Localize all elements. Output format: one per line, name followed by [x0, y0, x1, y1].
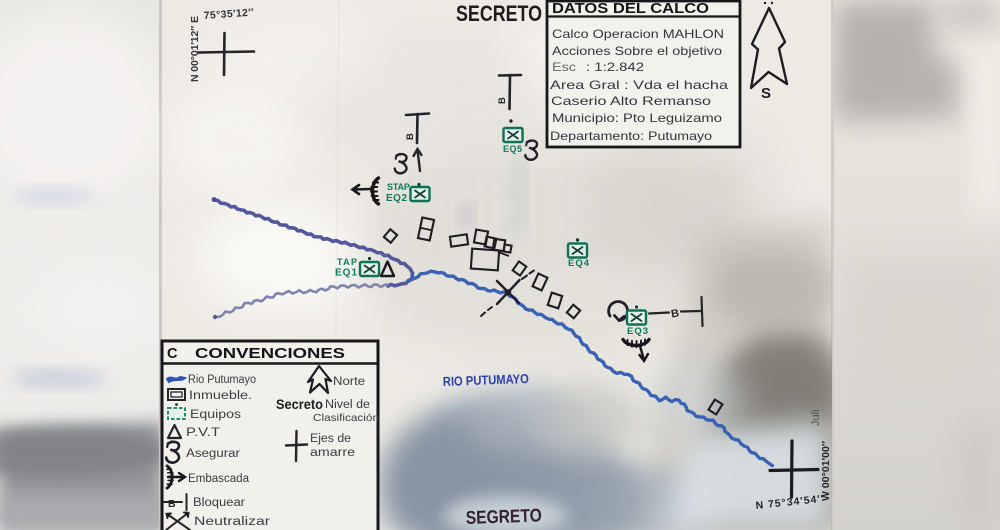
svg-text:Asegurar: Asegurar	[186, 448, 240, 460]
svg-text:Calco Operacion MAHLON: Calco Operacion MAHLON	[552, 27, 724, 41]
svg-text:: 1:2.842: : 1:2.842	[586, 60, 644, 74]
svg-text:Embascada: Embascada	[188, 473, 250, 485]
svg-text:Rio Putumayo: Rio Putumayo	[188, 374, 256, 386]
svg-text:SECRETO: SECRETO	[456, 1, 542, 26]
svg-text:Juli: Juli	[810, 409, 822, 426]
svg-text:Area Gral : Vda el hacha: Area Gral : Vda el hacha	[550, 78, 729, 92]
svg-text:TAP: TAP	[337, 257, 357, 267]
svg-text:EQ5: EQ5	[503, 144, 522, 154]
svg-text:Nivel de: Nivel de	[325, 399, 370, 411]
svg-text:amarre: amarre	[310, 447, 355, 459]
svg-text:S: S	[761, 85, 771, 102]
svg-text:P.V.T: P.V.T	[186, 427, 220, 439]
svg-text:Clasificación: Clasificación	[313, 412, 379, 424]
svg-text:Equipos: Equipos	[190, 409, 241, 421]
svg-text:Bloquear: Bloquear	[193, 497, 245, 509]
svg-text:N 00°01′12′′ E: N 00°01′12′′ E	[189, 16, 201, 82]
svg-text:B: B	[405, 133, 416, 140]
svg-text:EQ1: EQ1	[335, 268, 357, 279]
svg-text:EQ4: EQ4	[568, 258, 590, 269]
svg-text:Departamento: Putumayo: Departamento: Putumayo	[550, 129, 713, 143]
svg-text:CONVENCIONES: CONVENCIONES	[195, 346, 345, 362]
svg-text:W 00°01′00′′: W 00°01′00′′	[820, 441, 832, 501]
svg-text:B: B	[168, 498, 176, 510]
svg-text:Caserio Alto Remanso: Caserio Alto Remanso	[551, 94, 712, 108]
svg-text:C: C	[167, 346, 178, 362]
svg-text:Esc: Esc	[552, 60, 576, 74]
svg-text:B: B	[497, 97, 508, 104]
svg-text:EQ2: EQ2	[386, 193, 407, 204]
svg-text:Secreto: Secreto	[276, 397, 323, 412]
svg-text:Norte: Norte	[333, 376, 365, 388]
svg-text:EQ3: EQ3	[627, 326, 648, 337]
svg-text:Inmueble.: Inmueble.	[189, 390, 252, 402]
svg-text:RIO PUTUMAYO: RIO PUTUMAYO	[443, 371, 529, 389]
svg-text:Neutralizar: Neutralizar	[194, 516, 270, 528]
svg-text:SEGRETO: SEGRETO	[465, 504, 542, 528]
svg-text:DATOS DEL CALCO: DATOS DEL CALCO	[552, 1, 709, 17]
svg-text:Acciones Sobre el objetivo: Acciones Sobre el objetivo	[552, 44, 723, 58]
svg-text:STAP.: STAP.	[387, 182, 411, 192]
svg-text:Ejes de: Ejes de	[310, 433, 351, 445]
svg-text:Municipio: Pto Leguizamo: Municipio: Pto Leguizamo	[552, 111, 723, 125]
